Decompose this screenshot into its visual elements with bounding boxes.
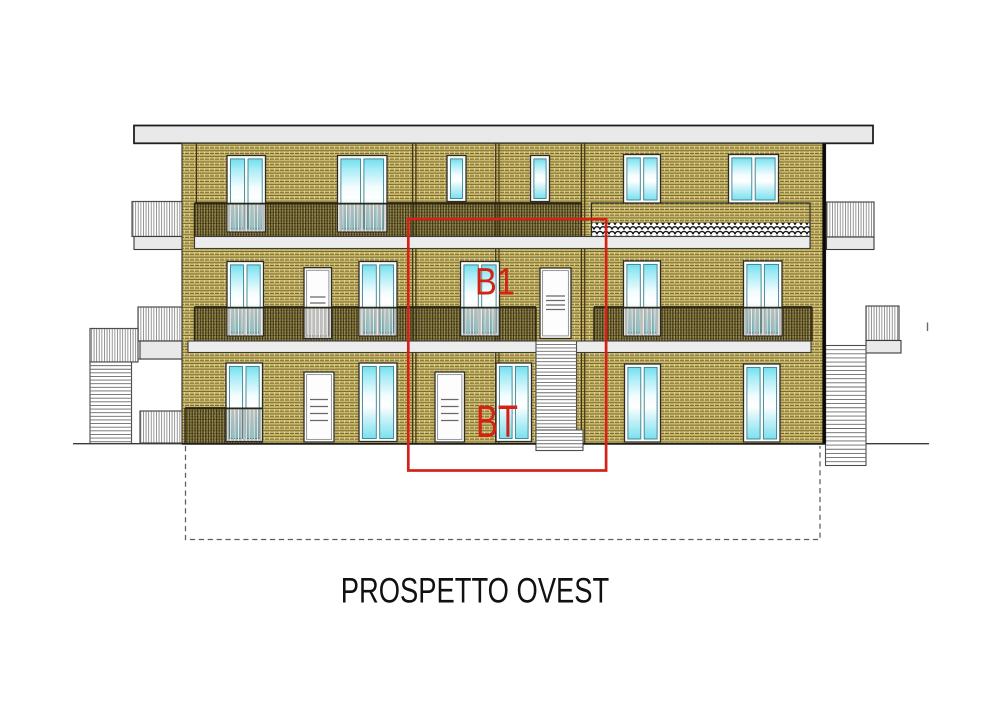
svg-text:PROSPETTO OVEST: PROSPETTO OVEST [341,571,610,611]
svg-text:B1: B1 [475,262,515,304]
svg-text:BT: BT [476,396,518,447]
